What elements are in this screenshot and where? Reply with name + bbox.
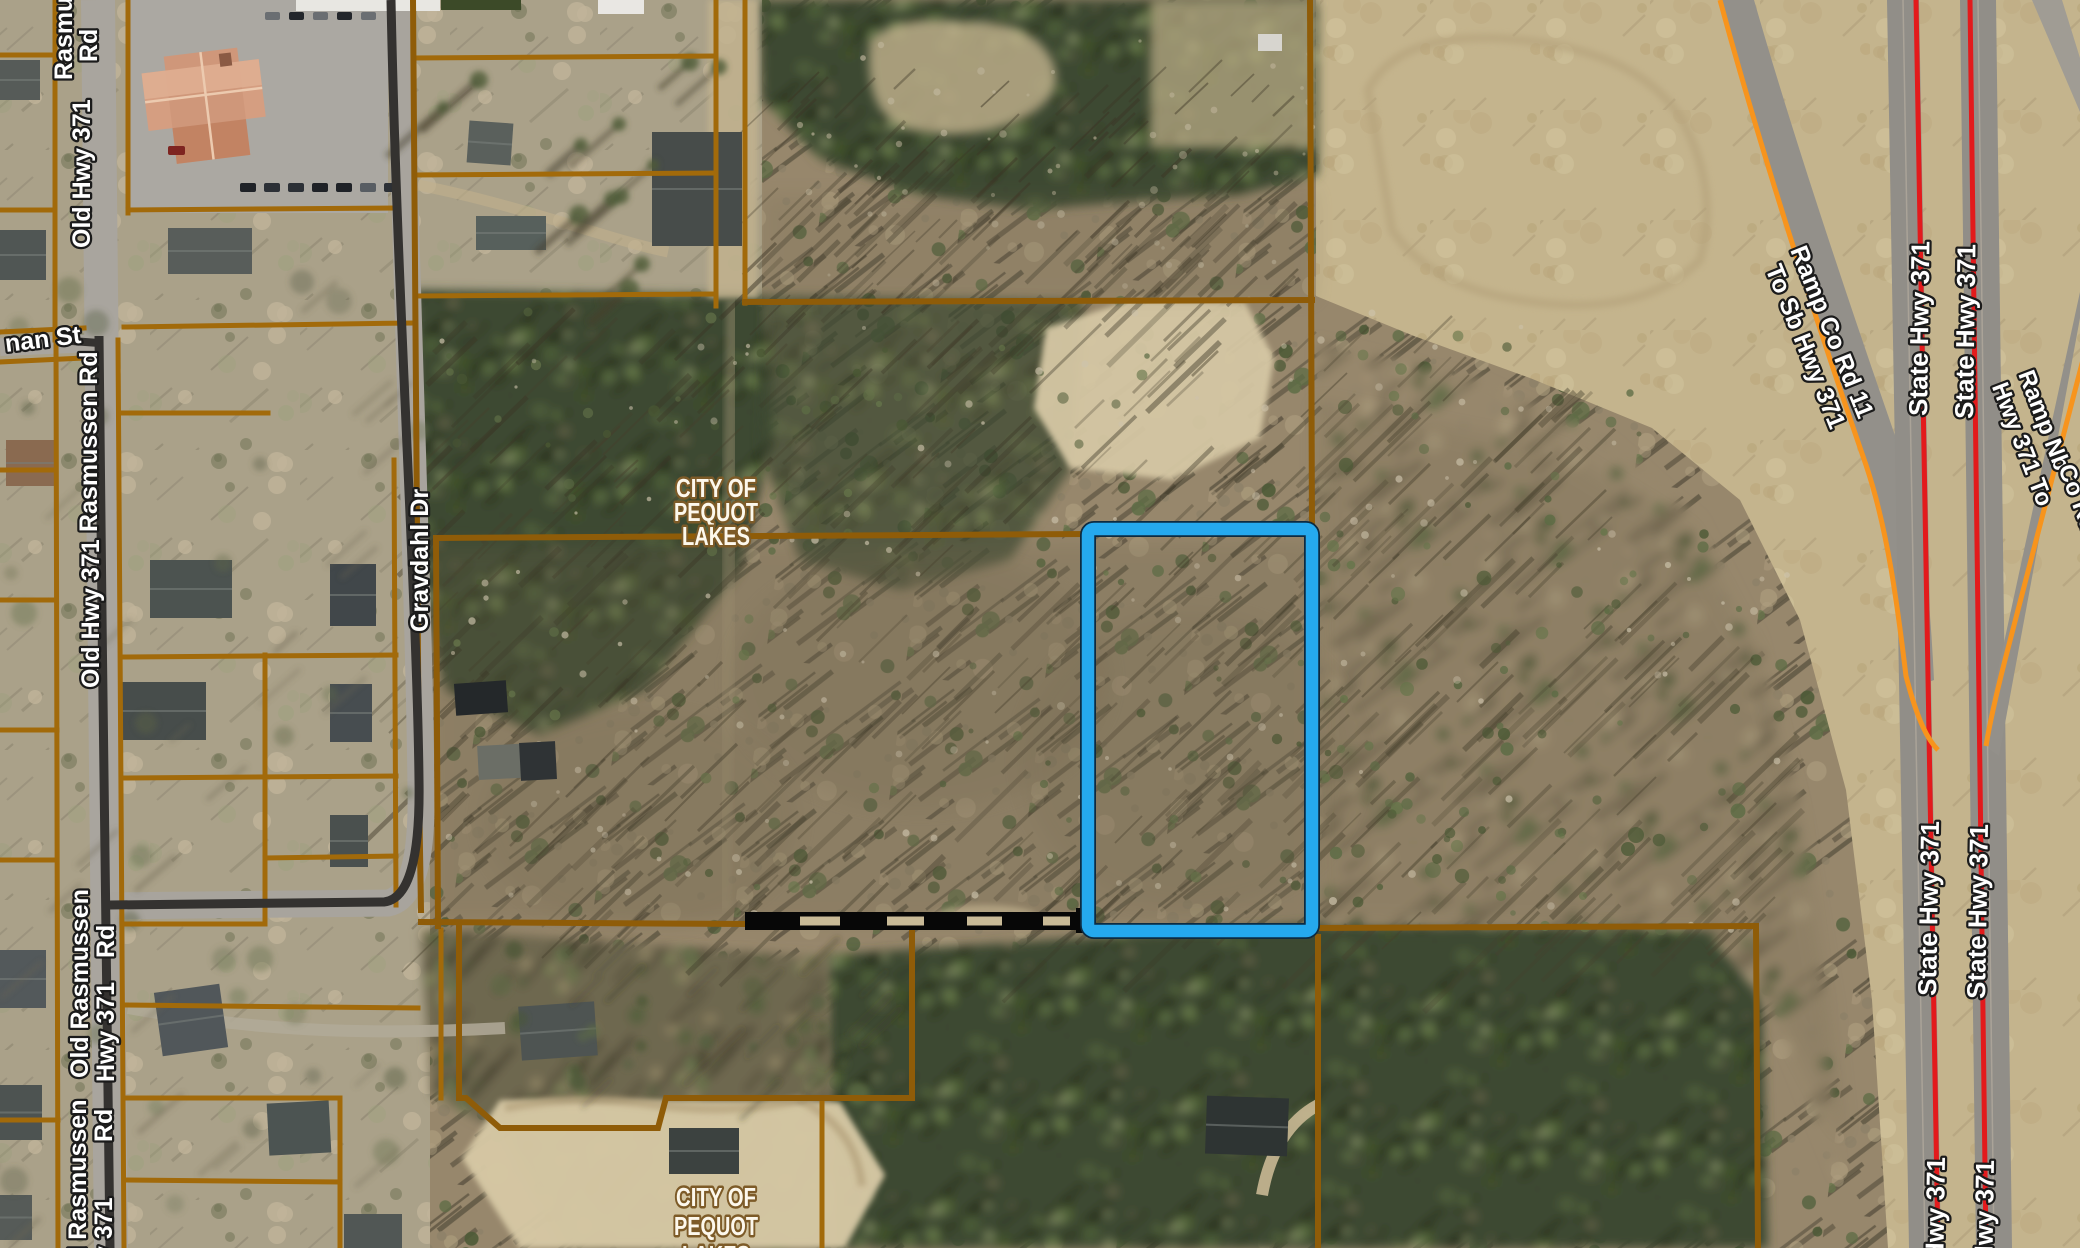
svg-text:LAKES: LAKES <box>682 1240 750 1248</box>
svg-text:Rasmussen Rd: Rasmussen Rd <box>75 351 103 532</box>
svg-text:y 371: y 371 <box>90 1197 118 1248</box>
svg-text:State Hwy 371: State Hwy 371 <box>1912 821 1945 996</box>
svg-text:Rd: Rd <box>75 29 103 62</box>
svg-text:CITY OF: CITY OF <box>676 1182 756 1212</box>
svg-text:State Hwy 371: State Hwy 371 <box>1903 241 1935 416</box>
svg-text:State Hwy 371: State Hwy 371 <box>1918 1157 1951 1248</box>
svg-text:State Hwy 371: State Hwy 371 <box>1949 244 1981 419</box>
svg-text:LAKES: LAKES <box>682 521 750 551</box>
svg-text:d Rasmussen: d Rasmussen <box>64 1099 92 1248</box>
svg-text:Rd: Rd <box>90 1109 118 1142</box>
svg-text:Rasmussen: Rasmussen <box>50 0 78 80</box>
svg-text:State Hwy 371: State Hwy 371 <box>1961 824 1994 999</box>
svg-text:Old Hwy 371: Old Hwy 371 <box>68 99 96 248</box>
svg-text:Old Hwy 371: Old Hwy 371 <box>77 539 105 688</box>
svg-text:Rd: Rd <box>92 925 120 958</box>
svg-text:Old Rasmussen: Old Rasmussen <box>66 889 94 1078</box>
svg-text:Gravdahl Dr: Gravdahl Dr <box>406 489 434 632</box>
svg-text:PEQUOT: PEQUOT <box>674 1211 758 1241</box>
svg-text:State Hwy 371: State Hwy 371 <box>1967 1160 2000 1248</box>
svg-text:Hwy 371: Hwy 371 <box>92 982 120 1082</box>
